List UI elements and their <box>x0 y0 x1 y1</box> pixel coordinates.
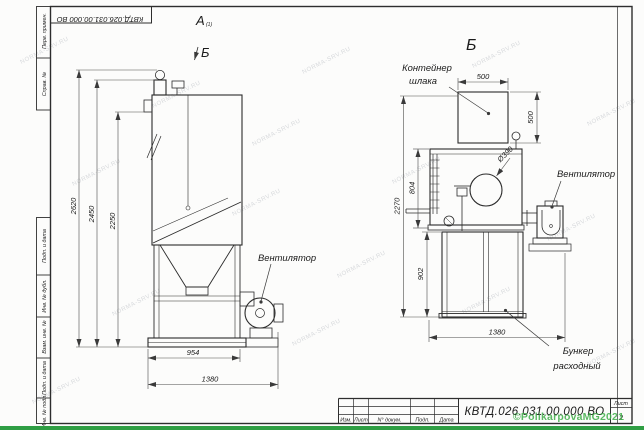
drawing-canvas: КВТД.026.031.00.000 ВО Перв. примен. Спр… <box>0 0 644 430</box>
label-slag-container-2: шлака <box>409 75 437 86</box>
dim-side-body-height: 804 <box>408 182 417 195</box>
title-sheet-label: Лист <box>613 401 628 407</box>
side-view-outline <box>406 92 571 318</box>
title-col-ndokum: N° докум. <box>378 418 402 424</box>
detail-label-a: А <box>195 13 205 28</box>
drawing-page: NORMA-SRV.RU NORMA-SRV.RU NORMA-SRV.RU N… <box>0 0 644 430</box>
dim-front-height-body: 2250 <box>108 212 117 231</box>
frame-cell-podp-data-2: Подп. и дата <box>42 361 48 395</box>
label-fan-front: Вентилятор <box>258 252 316 263</box>
leader-dot <box>550 205 553 208</box>
dim-side-depth-overall: 1380 <box>489 328 507 337</box>
dim-side-cabinet-height: 902 <box>416 267 425 280</box>
dim-front-height-overall: 2620 <box>69 197 78 216</box>
title-col-list: Лист <box>353 418 368 424</box>
leader-fan-side <box>552 181 561 206</box>
leader-slag-container <box>449 87 488 113</box>
title-col-data: Дата <box>438 418 453 424</box>
frame-cell-podp-data-1: Подп. и дата <box>42 229 48 263</box>
dim-front-width-base: 954 <box>187 348 200 357</box>
view-arrow-label-b: Б <box>201 45 210 60</box>
label-fan-side: Вентилятор <box>557 168 615 179</box>
label-slag-container-1: Контейнер <box>402 62 452 73</box>
front-view-dimensions <box>76 70 278 389</box>
side-view-dimensions <box>400 78 565 342</box>
leader-dot <box>487 112 490 115</box>
sheet-frame <box>37 7 633 424</box>
label-hopper-1: Бункер <box>563 345 594 356</box>
leader-dot <box>259 300 262 303</box>
title-col-izm: Изм. <box>340 418 352 424</box>
front-view-outline <box>144 70 283 347</box>
frame-cell-inv-podl: Инв. № подл. <box>42 394 48 427</box>
frame-cell-vzam-inv: Взам. инв. № <box>42 320 48 354</box>
top-stamp-doc-number: КВТД.026.031.00.000 ВО <box>57 15 144 24</box>
dim-side-total-height: 2270 <box>393 197 402 216</box>
leader-hopper <box>506 311 549 346</box>
dim-side-container-height: 500 <box>526 110 535 123</box>
view-arrow-b <box>195 47 199 60</box>
frame-cell-inv-dubl: Инв. № дубл. <box>42 279 48 312</box>
leader-dot <box>504 309 507 312</box>
frame-cell-sprav-no: Справ. № <box>42 72 48 97</box>
bottom-green-strip <box>0 426 644 430</box>
author-watermark: ©PolikarpovaMG2021 <box>513 411 624 423</box>
frame-cell-perv-primen: Перв. примен. <box>42 13 48 49</box>
label-hopper-2: расходный <box>552 360 601 371</box>
dim-front-width-overall: 1380 <box>202 375 220 384</box>
title-col-podp: Подп. <box>415 418 429 424</box>
leader-fan-front <box>261 264 271 301</box>
dim-front-height-duct: 2450 <box>87 205 96 224</box>
side-view-title-b: Б <box>466 37 476 54</box>
detail-label-a-sub: (1) <box>206 22 212 28</box>
dim-side-container-width: 500 <box>477 72 490 81</box>
